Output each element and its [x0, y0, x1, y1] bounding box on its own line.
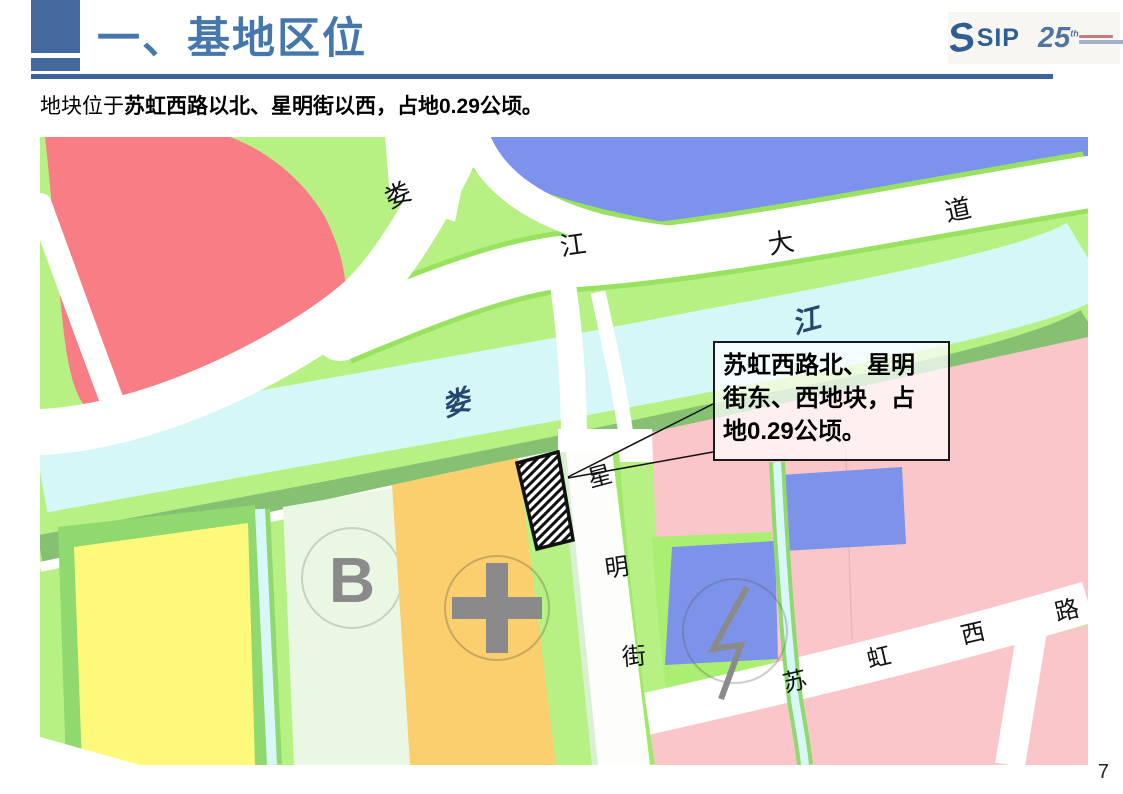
logo-small-text-bars [1079, 35, 1123, 44]
page-number: 7 [1098, 761, 1109, 784]
subtitle-emphasis: 苏虹西路以北、星明街以西，占地0.29公顷。 [124, 95, 543, 118]
avenue-label-char: 江 [558, 228, 588, 261]
callout-line: 苏虹西路北、星明 [723, 349, 940, 382]
logo-red-bar [1079, 35, 1113, 38]
yellow-parcel [74, 523, 255, 765]
blue-block-east [780, 467, 906, 551]
location-map: 娄 江 大 道 娄 江 星 明 街 苏 虹 西 路 B 苏虹西路北、星明 街东、… [40, 137, 1088, 765]
logo-blue-bar [1079, 40, 1123, 44]
callout-line: 地0.29公顷。 [723, 415, 940, 448]
header-deco-bar [31, 58, 80, 71]
street-label-char: 街 [621, 643, 647, 672]
sip-swoosh-icon: S [945, 16, 978, 60]
slide: 一、基地区位 S SIP 25th 地块位于苏虹西路以北、星明街以西，占地0.2… [0, 0, 1123, 794]
site-callout-box: 苏虹西路北、星明 街东、西地块，占 地0.29公顷。 [713, 341, 950, 461]
callout-line: 街东、西地块，占 [723, 382, 940, 415]
sip-logo-text: SIP [977, 24, 1020, 53]
slide-subtitle: 地块位于苏虹西路以北、星明街以西，占地0.29公顷。 [40, 90, 543, 120]
header-deco-square [31, 0, 80, 53]
page-title: 一、基地区位 [97, 4, 367, 66]
header-rule [31, 74, 1053, 79]
bridge-road [560, 265, 574, 432]
street-label-char: 明 [603, 553, 631, 583]
anniversary-25-mark: 25th [1038, 24, 1079, 53]
subtitle-prefix: 地块位于 [40, 95, 124, 118]
sip-logo: S SIP 25th [948, 12, 1120, 64]
block-b-label: B [329, 544, 375, 616]
avenue-label-char: 大 [766, 226, 797, 260]
